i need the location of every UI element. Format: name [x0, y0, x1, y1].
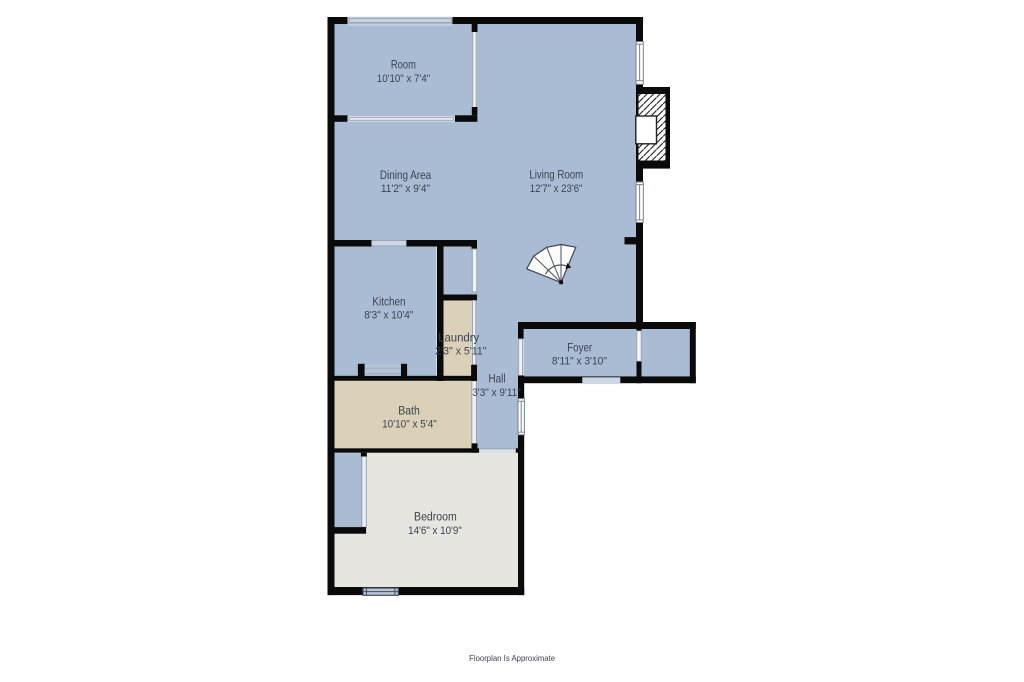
svg-text:8'3" x 10'4": 8'3" x 10'4" [364, 310, 413, 322]
svg-text:8'11" x 3'10": 8'11" x 3'10" [552, 355, 607, 367]
svg-text:Bedroom: Bedroom [414, 509, 457, 523]
svg-text:Room: Room [391, 58, 416, 72]
svg-text:Bath: Bath [398, 404, 420, 418]
svg-text:Kitchen: Kitchen [372, 294, 405, 308]
svg-text:10'10" x 5'4": 10'10" x 5'4" [382, 418, 437, 430]
svg-text:10'10" x 7'4": 10'10" x 7'4" [377, 73, 431, 85]
svg-text:14'6" x 10'9": 14'6" x 10'9" [408, 525, 462, 537]
svg-text:Foyer: Foyer [567, 340, 592, 354]
svg-text:Dining Area: Dining Area [380, 168, 432, 182]
svg-text:2'3" x 5'11": 2'3" x 5'11" [435, 346, 486, 358]
svg-text:11'2" x 9'4": 11'2" x 9'4" [381, 183, 430, 195]
svg-text:Laundry: Laundry [438, 331, 480, 345]
svg-text:Living Room: Living Room [529, 168, 583, 182]
svg-text:Floorplan Is Approximate: Floorplan Is Approximate [469, 653, 555, 663]
svg-text:3'3" x 9'11": 3'3" x 9'11" [472, 387, 521, 399]
svg-text:12'7" x 23'6": 12'7" x 23'6" [530, 183, 583, 195]
svg-text:Hall: Hall [488, 371, 505, 385]
